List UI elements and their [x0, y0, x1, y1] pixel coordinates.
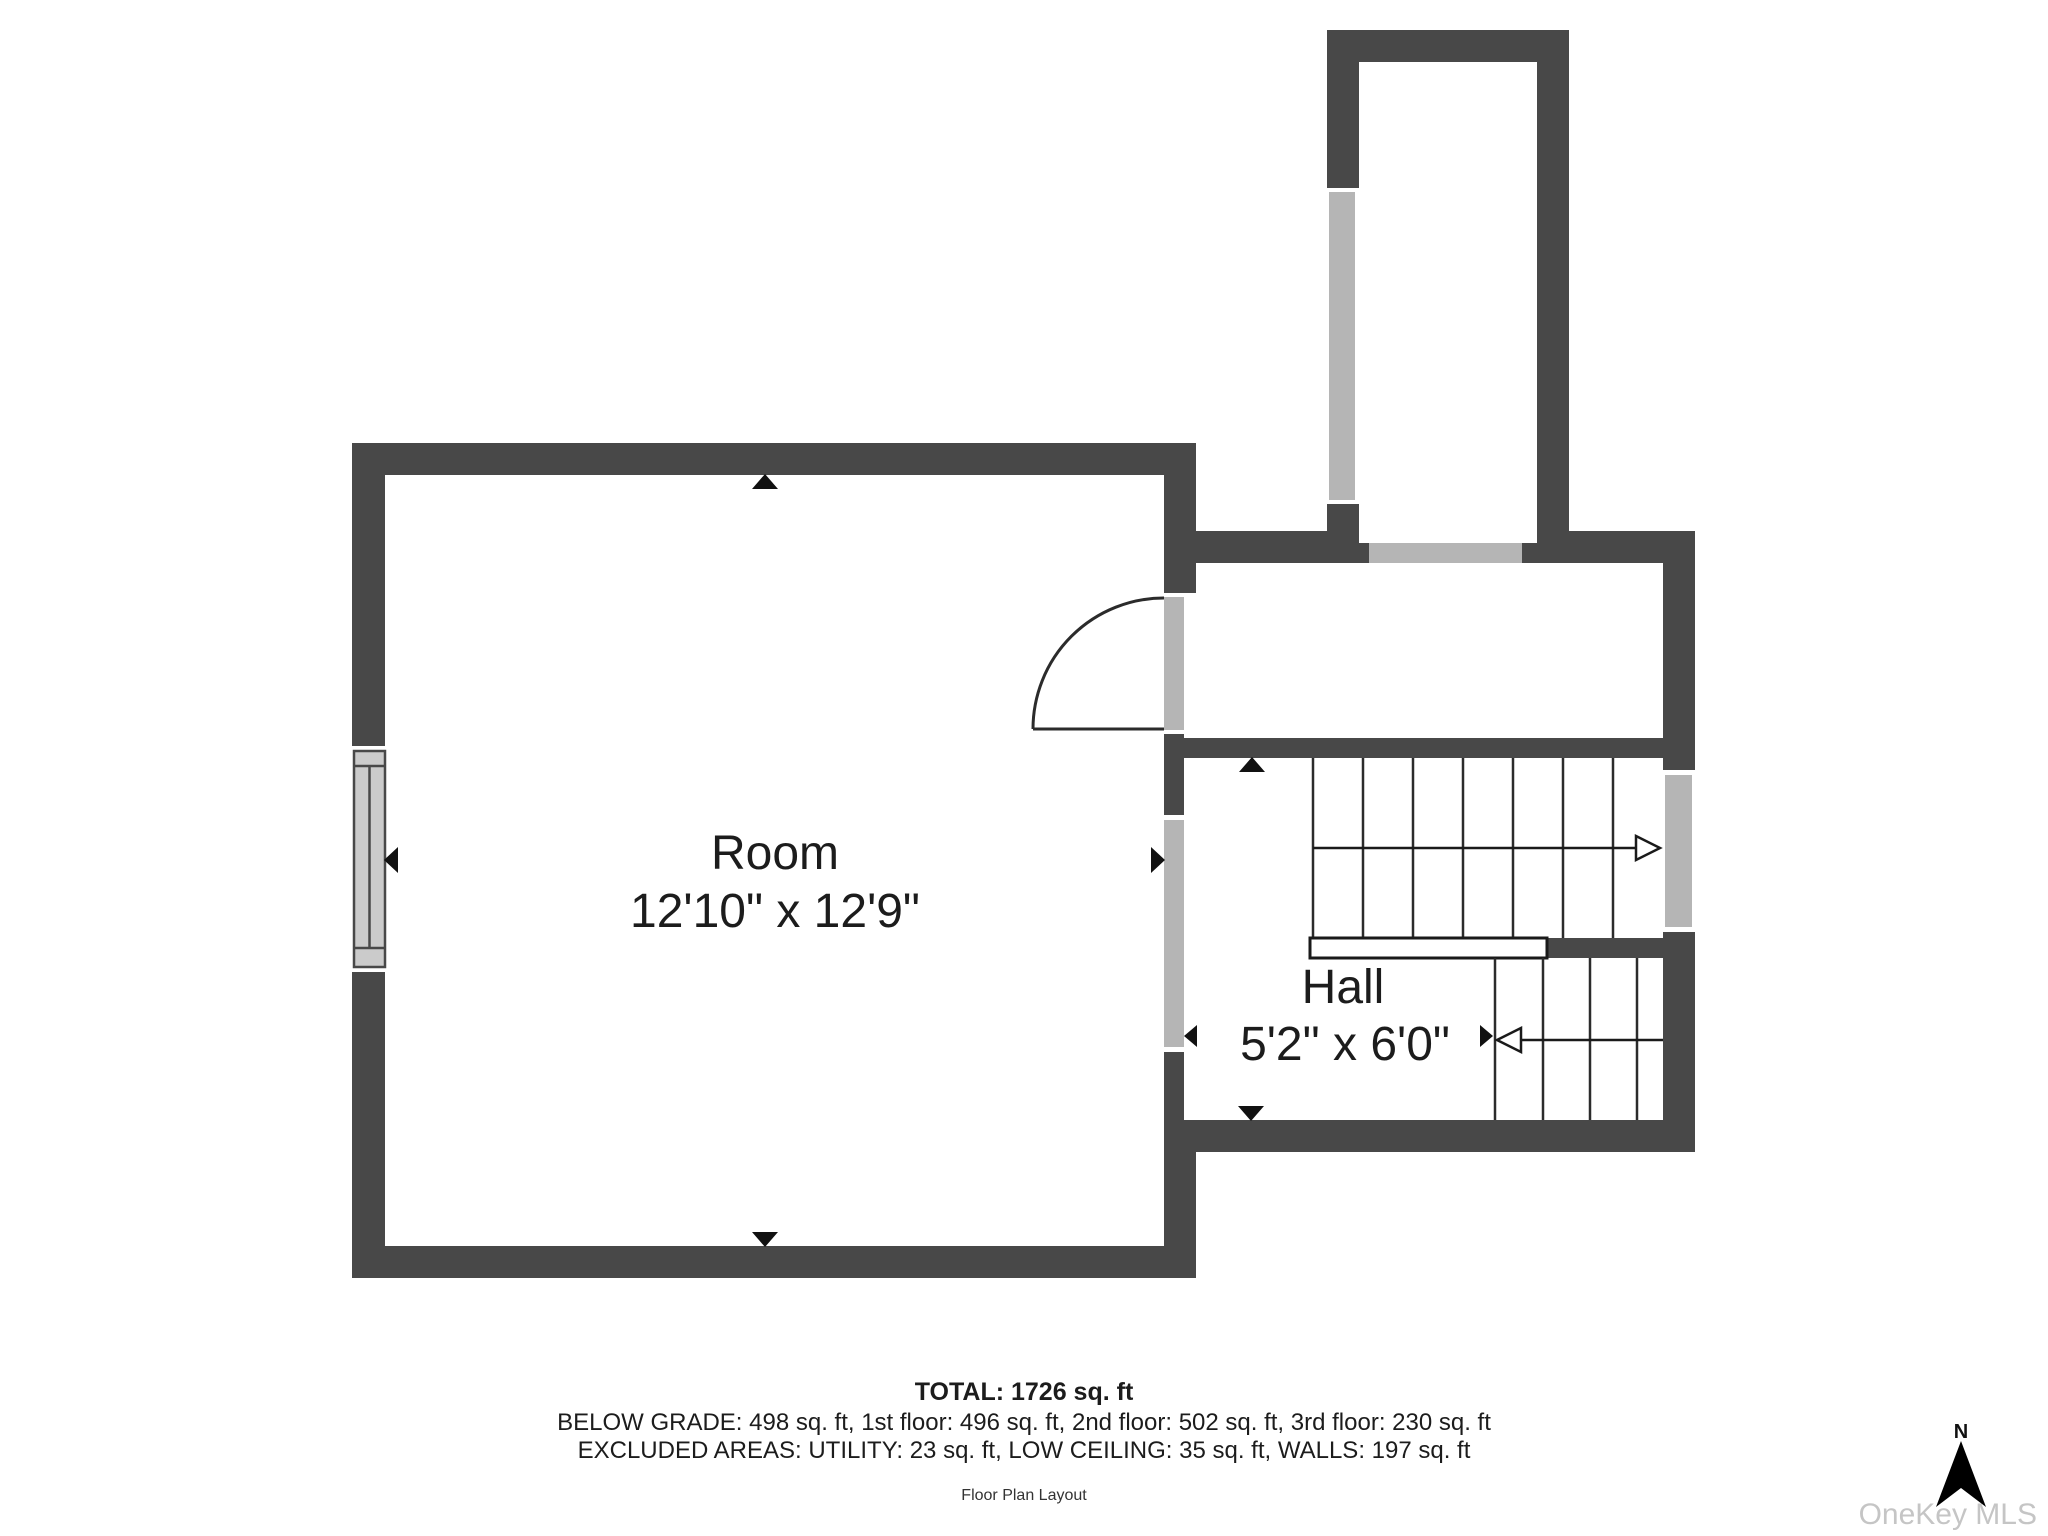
- stairs-lower-flight: [1495, 958, 1663, 1120]
- room-right-wall-upper: [1164, 443, 1196, 593]
- hall-block: Hall 5'2" x 6'0": [1164, 531, 1695, 1152]
- stairwell-left-wall-upper: [1327, 30, 1359, 188]
- hall-dim-marker-down: [1238, 1106, 1264, 1121]
- room-window: [354, 751, 385, 967]
- room-door-opening: [1164, 597, 1184, 730]
- room-dim-marker-right: [1151, 847, 1165, 873]
- stairwell-bottom-wall-right-notch: [1522, 543, 1537, 563]
- hall-label: Hall: [1302, 961, 1385, 1014]
- room-dim-marker-down: [752, 1232, 778, 1247]
- stairs-upper-flight: [1313, 758, 1660, 938]
- plan-caption: Floor Plan Layout: [961, 1487, 1087, 1504]
- stairwell-projection: [1327, 30, 1569, 563]
- room: Room 12'10" x 12'9": [352, 443, 1196, 1278]
- floor-plan-page: Room 12'10" x 12'9": [0, 0, 2048, 1536]
- hall-left-window: [1164, 820, 1184, 1047]
- stairwell-right-wall: [1537, 30, 1569, 563]
- hall-dim-marker-right: [1480, 1025, 1493, 1047]
- stairs-down-arrow-head: [1497, 1028, 1521, 1052]
- stairwell-left-wall-lower: [1327, 504, 1359, 563]
- compass-north-label: N: [1954, 1421, 1968, 1443]
- stairwell-bottom-wall-left-notch: [1359, 543, 1369, 563]
- hall-bottom-wall: [1164, 1120, 1695, 1152]
- room-right-wall-mid1: [1164, 734, 1184, 815]
- door: [1033, 598, 1164, 729]
- hall-top-wall-left: [1196, 531, 1327, 563]
- room-dimensions: 12'10" x 12'9": [630, 885, 920, 938]
- room-label: Room: [711, 827, 839, 880]
- hall-dim-marker-up: [1239, 757, 1265, 772]
- room-right-wall-mid2: [1164, 1052, 1184, 1120]
- hall-right-wall-upper: [1663, 531, 1695, 770]
- summary-block: TOTAL: 1726 sq. ft BELOW GRADE: 498 sq. …: [557, 1378, 1491, 1504]
- landing-stub-wall: [1547, 938, 1663, 958]
- room-left-wall-upper: [352, 443, 385, 746]
- room-dim-marker-up: [752, 474, 778, 489]
- stairwell-bottom-opening: [1369, 543, 1522, 563]
- watermark-text: OneKey MLS: [1859, 1498, 2037, 1531]
- room-top-wall: [352, 443, 1196, 475]
- stairwell-top-wall: [1327, 30, 1569, 62]
- door-swing-arc: [1033, 598, 1164, 729]
- landing-divider-wall: [1184, 738, 1663, 758]
- summary-floors: BELOW GRADE: 498 sq. ft, 1st floor: 496 …: [557, 1409, 1491, 1436]
- room-left-wall-lower: [352, 972, 385, 1278]
- compass: N: [1936, 1421, 1986, 1507]
- stairs-up-arrow-head: [1636, 836, 1660, 860]
- stairwell-window: [1329, 192, 1355, 500]
- hall-right-wall-lower: [1663, 932, 1695, 1152]
- stair-landing: [1310, 938, 1547, 958]
- floor-plan-svg: Room 12'10" x 12'9": [0, 0, 2048, 1536]
- hall-dim-marker-left: [1184, 1025, 1197, 1047]
- room-bottom-wall: [352, 1246, 1196, 1278]
- hall-right-window: [1665, 775, 1692, 927]
- hall-dimensions: 5'2" x 6'0": [1240, 1018, 1450, 1071]
- summary-excluded: EXCLUDED AREAS: UTILITY: 23 sq. ft, LOW …: [578, 1437, 1471, 1464]
- summary-total: TOTAL: 1726 sq. ft: [915, 1378, 1134, 1406]
